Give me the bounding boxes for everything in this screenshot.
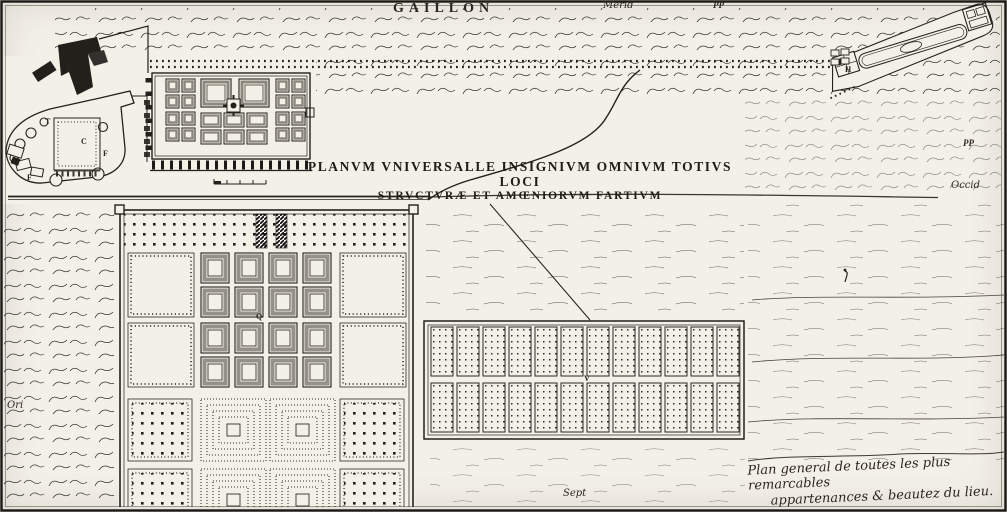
marker-pp-right: PP	[963, 138, 974, 148]
compass-south-label: Merid	[603, 0, 634, 11]
latin-caption-line1: PLANVM VNIVERSALLE INSIGNIVM OMNIVM TOTI…	[290, 159, 750, 189]
upper-garden	[149, 73, 315, 171]
plan-letter-v: V	[584, 374, 590, 383]
marker-pp-top: PP	[713, 0, 724, 10]
plan-letter-f: F	[103, 149, 108, 158]
map-title: GAILLON	[393, 1, 494, 17]
engraving-canvas	[0, 0, 1007, 512]
scale-bar	[214, 179, 266, 185]
orchard-band	[124, 214, 409, 248]
compass-north-label: Sept	[563, 488, 586, 499]
plan-letter-h: H	[845, 65, 851, 74]
plan-letter-c: C	[81, 137, 87, 146]
latin-caption-line2: STRVCTVRÆ ET AMŒNIORVM FARTIVM	[290, 189, 750, 204]
plan-letter-f2: F	[27, 173, 32, 182]
plan-letter-t: T	[45, 117, 50, 126]
engraved-plan: GAILLON Merid PP PP Occid Ori Sept PLANV…	[0, 0, 1007, 512]
compass-west-label: Occid	[951, 180, 980, 191]
compass-east-label: Ori	[7, 400, 23, 411]
plan-letter-e: E	[67, 63, 72, 72]
latin-caption: PLANVM VNIVERSALLE INSIGNIVM OMNIVM TOTI…	[290, 159, 750, 204]
grand-garden	[118, 208, 415, 512]
plan-letter-q: Q	[256, 312, 262, 321]
